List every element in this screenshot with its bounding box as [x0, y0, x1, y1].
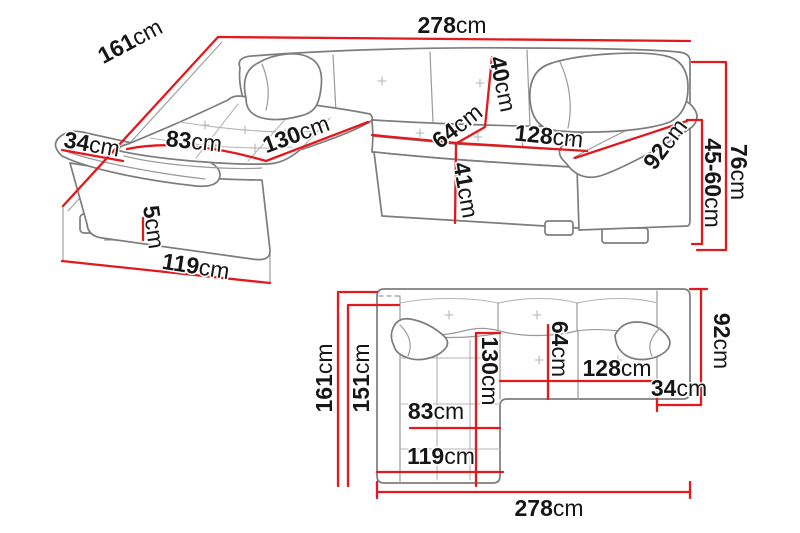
- pillow-left: [245, 54, 322, 120]
- plan-dim-label-seat-depth: 64cm: [547, 321, 573, 377]
- plan-dim-label-total-width: 278cm: [514, 495, 583, 521]
- dim-label-total-height: 76cm: [726, 144, 752, 200]
- perspective-view: 278cm 161cm 34cm 83cm 130cm 40cm 64cm 12…: [55, 12, 752, 284]
- dim-label-seat-height-range: 45-60cm: [700, 138, 726, 228]
- pillow-right: [530, 53, 688, 132]
- plan-dim-label-armrest-width: 34cm: [651, 375, 707, 401]
- plan-dim-label-armrest-depth: 92cm: [709, 313, 735, 369]
- plan-dim-label-depth-total: 161cm: [311, 343, 337, 412]
- sofa-leg: [602, 228, 648, 243]
- plan-dim-label-chaise-seat-width: 83cm: [408, 398, 464, 424]
- diagram-canvas: 278cm 161cm 34cm 83cm 130cm 40cm 64cm 12…: [0, 0, 800, 533]
- dim-label-total-width: 278cm: [417, 12, 486, 38]
- plan-view: 161cm 151cm 130cm 64cm 128cm 34cm 92cm 8…: [311, 289, 735, 521]
- plan-dim-label-chaise-length: 130cm: [477, 336, 503, 405]
- plan-dim-label-chaise-front: 119cm: [407, 443, 475, 469]
- plan-dim-label-seat-width: 128cm: [582, 355, 651, 381]
- sofa-leg: [545, 221, 573, 235]
- sofa-dimension-diagram: 278cm 161cm 34cm 83cm 130cm 40cm 64cm 12…: [0, 0, 800, 533]
- dim-label-depth-total: 161cm: [93, 13, 166, 68]
- plan-dim-label-depth-inner: 151cm: [348, 343, 374, 412]
